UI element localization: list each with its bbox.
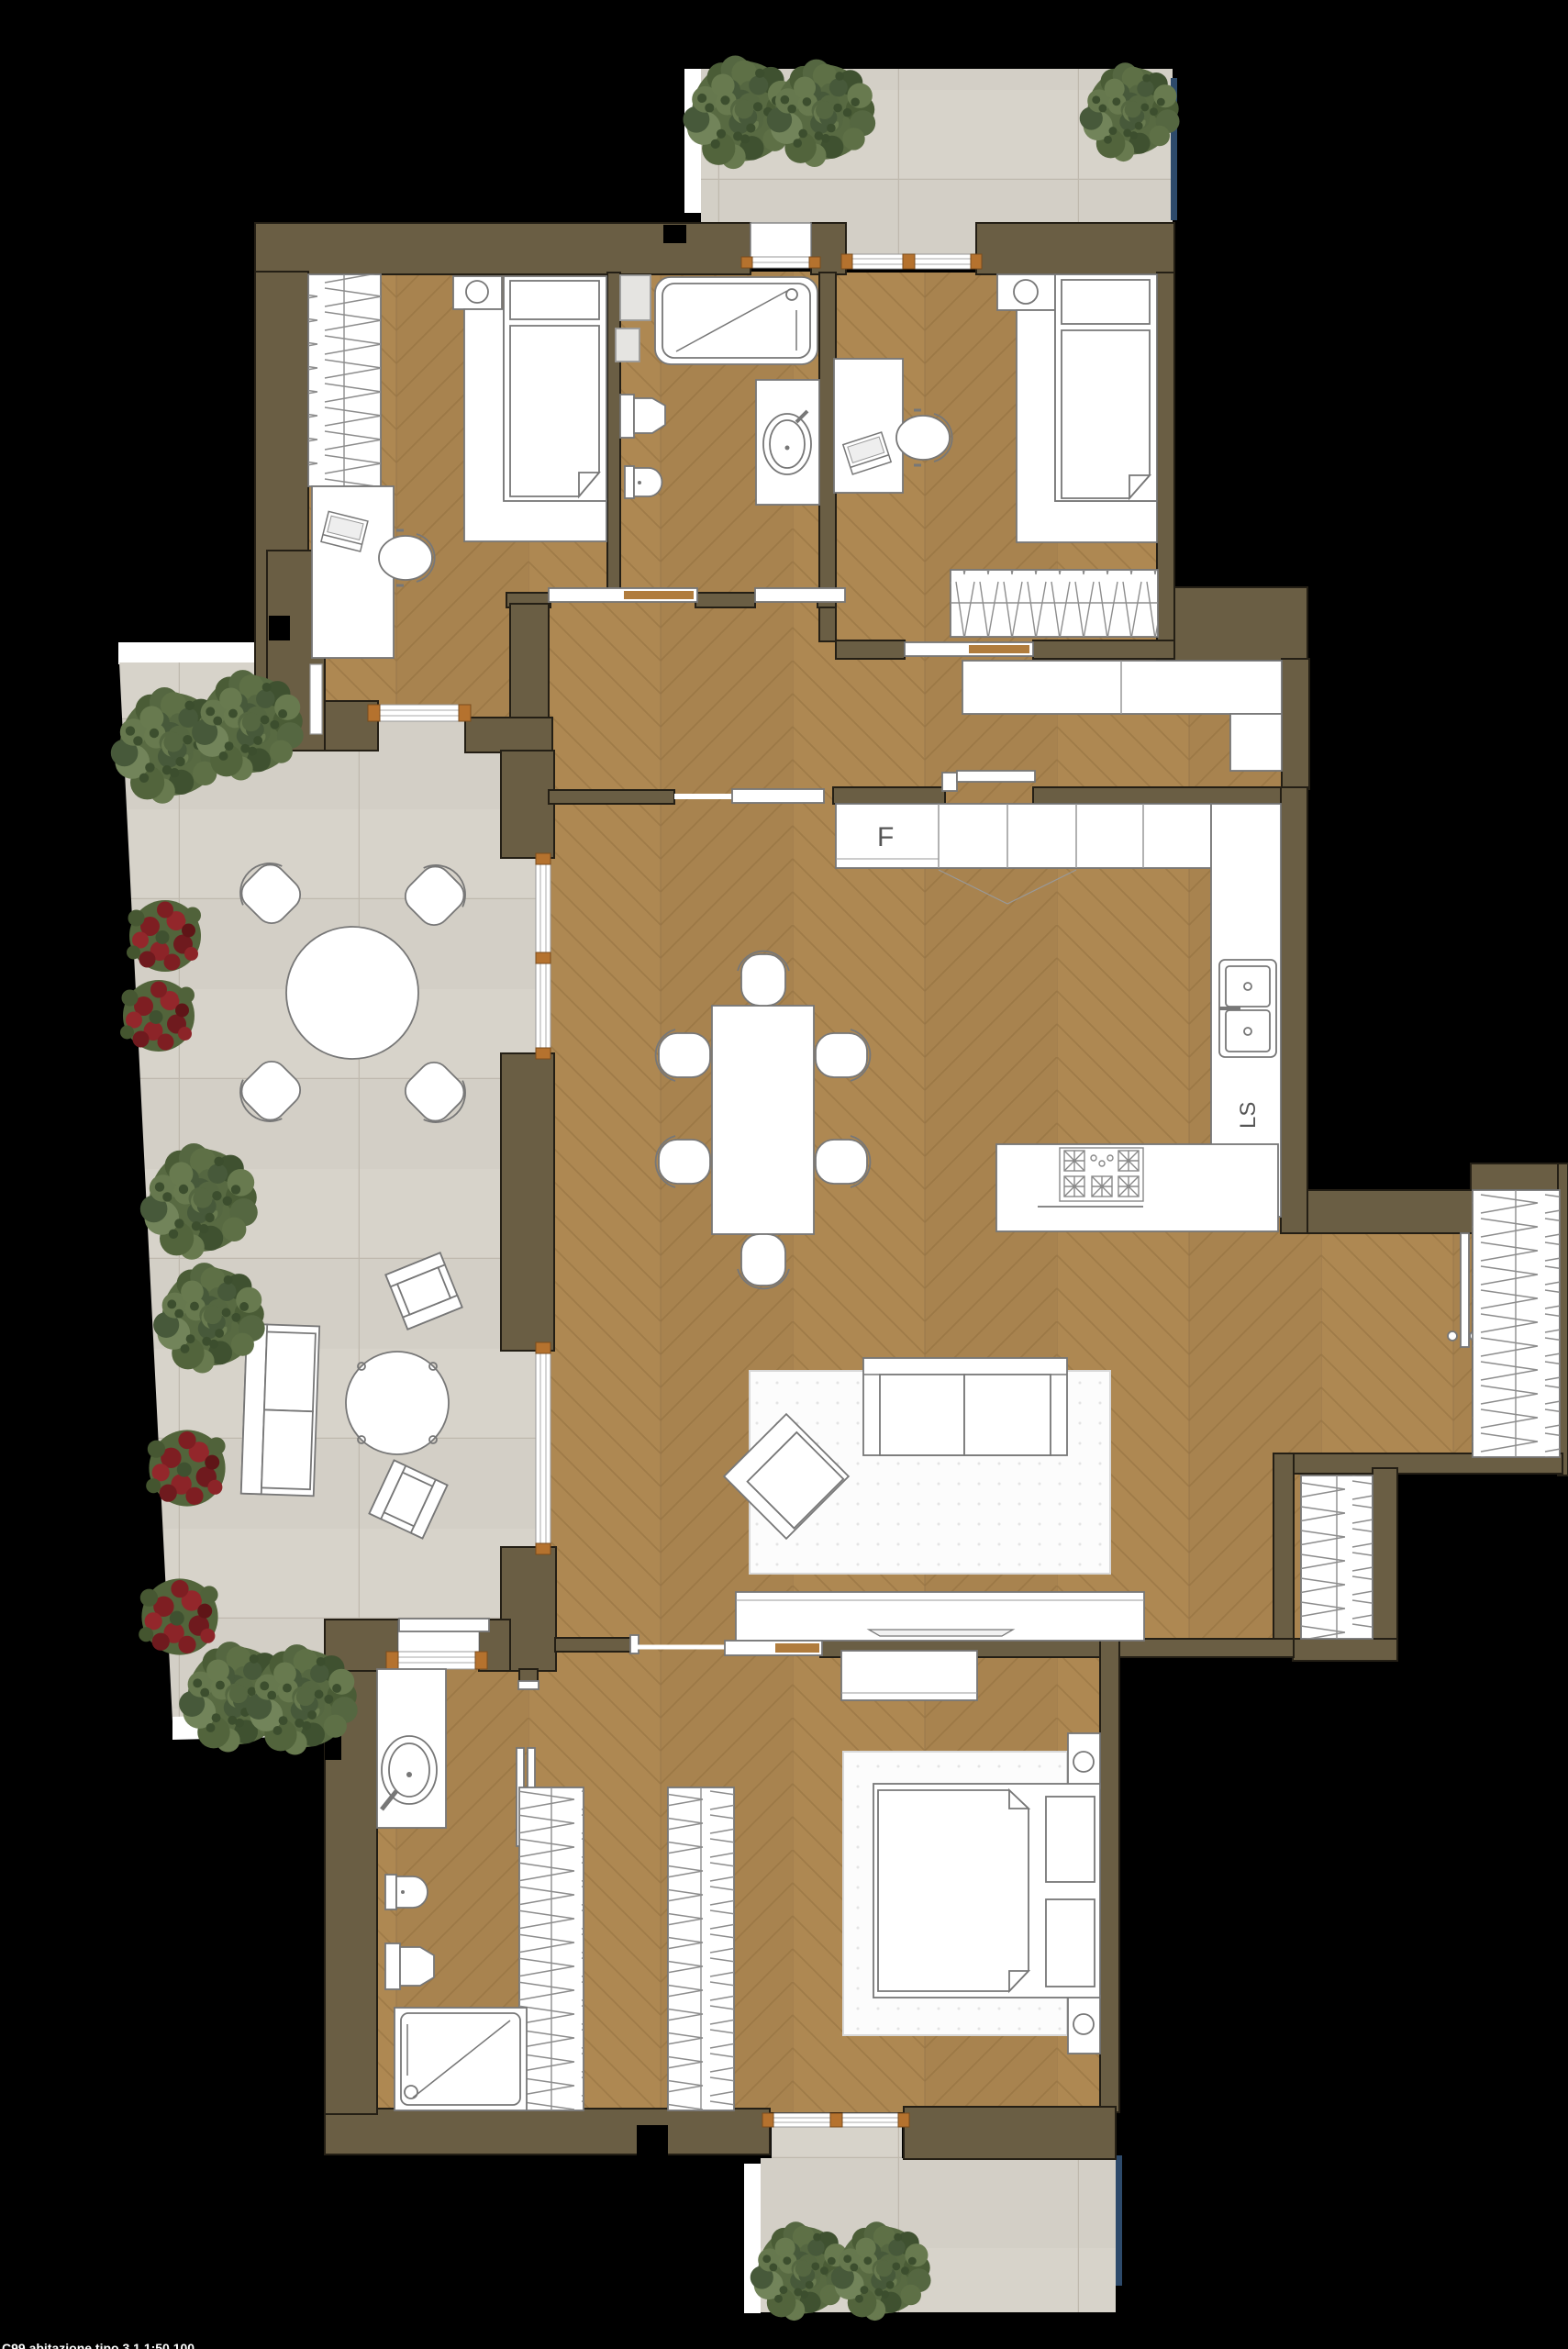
svg-text:LS: LS	[1236, 1102, 1261, 1129]
svg-text:F: F	[877, 822, 894, 852]
svg-text:C99 abitazione tipo 3 1 1:50 1: C99 abitazione tipo 3 1 1:50 100	[2, 2341, 195, 2349]
